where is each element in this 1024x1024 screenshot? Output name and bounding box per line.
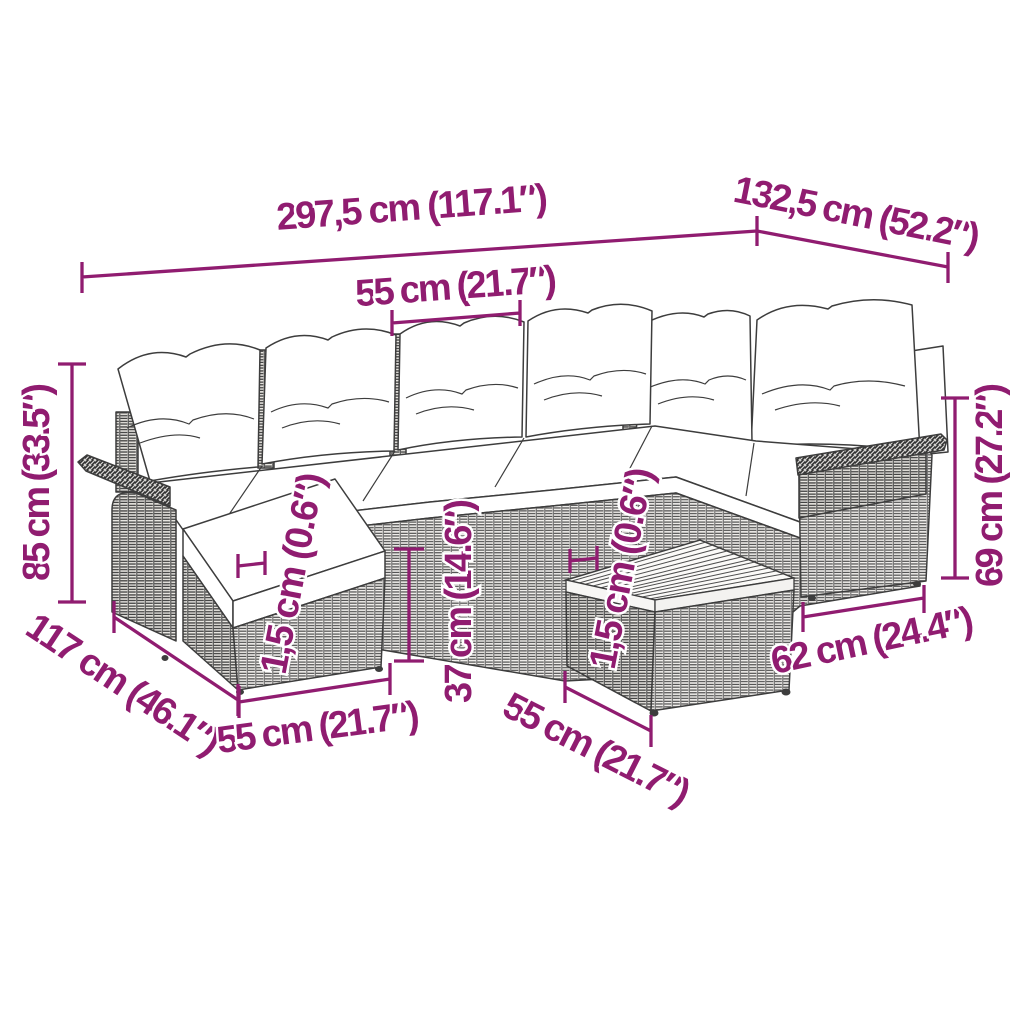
svg-text:69 cm (27.2″): 69 cm (27.2″) (969, 383, 1011, 587)
svg-text:62 cm (24.4″): 62 cm (24.4″) (767, 599, 977, 683)
svg-text:132,5 cm (52.2″): 132,5 cm (52.2″) (730, 169, 983, 259)
svg-text:55 cm (21.7″): 55 cm (21.7″) (354, 259, 559, 316)
svg-text:55 cm (21.7″): 55 cm (21.7″) (214, 694, 422, 762)
svg-text:37 cm (14.6″): 37 cm (14.6″) (438, 499, 480, 703)
svg-text:297,5 cm (117.1″): 297,5 cm (117.1″) (275, 177, 549, 239)
svg-text:85 cm (33.5″): 85 cm (33.5″) (16, 383, 58, 581)
